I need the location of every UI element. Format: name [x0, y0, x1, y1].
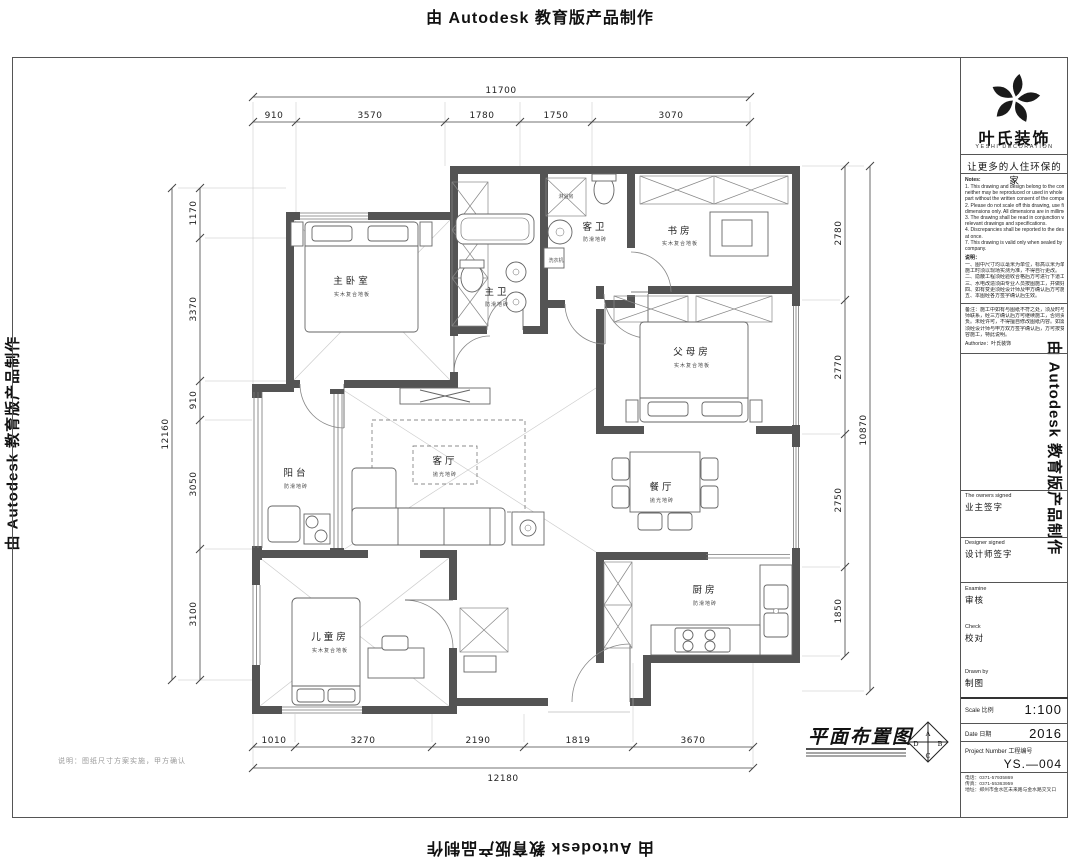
plan-title: 平面布置图 — [808, 726, 914, 748]
svg-text:1819: 1819 — [566, 736, 591, 746]
svg-text:C: C — [926, 752, 931, 760]
footer-note: 说明：图纸尺寸方案实施，甲方确认 — [58, 756, 186, 765]
room-label-study: 书房 — [667, 225, 692, 237]
dim-bottom-overall: 12180 — [487, 774, 518, 784]
svg-text:910: 910 — [189, 391, 199, 410]
svg-text:防滑地砖: 防滑地砖 — [583, 236, 607, 243]
room-label-kitchen: 厨房 — [692, 584, 717, 596]
svg-text:3670: 3670 — [681, 736, 706, 746]
svg-text:1750: 1750 — [544, 111, 569, 121]
svg-text:A: A — [925, 730, 931, 738]
room-label-parents-room: 父母房 — [673, 346, 711, 358]
svg-text:实木复合地板: 实木复合地板 — [334, 291, 370, 298]
svg-text:防滑地砖: 防滑地砖 — [693, 600, 717, 607]
svg-text:3070: 3070 — [659, 111, 684, 121]
svg-text:实木复合地板: 实木复合地板 — [674, 362, 710, 369]
dim-right-overall: 10870 — [859, 414, 869, 445]
svg-text:防滑地砖: 防滑地砖 — [284, 483, 308, 490]
svg-text:D: D — [913, 740, 918, 748]
floor-plan: 主卧室 实木复合地板 主卫 防滑地砖 客卫 防滑地砖 书房 实木复合地板 父母房… — [0, 0, 1080, 864]
washer-label: 洗衣机 — [548, 257, 563, 264]
room-label-balcony: 阳台 — [283, 467, 308, 479]
svg-text:B: B — [938, 740, 943, 748]
room-label-master-bath: 主卫 — [484, 286, 509, 298]
furniture — [268, 174, 792, 705]
svg-text:1780: 1780 — [470, 111, 495, 121]
compass-icon: A B C D — [908, 722, 948, 762]
svg-text:3570: 3570 — [358, 111, 383, 121]
dim-left-overall: 12160 — [161, 418, 171, 449]
svg-text:2190: 2190 — [466, 736, 491, 746]
room-label-master-bedroom: 主卧室 — [333, 275, 371, 287]
svg-text:2780: 2780 — [834, 221, 844, 246]
svg-text:抛光地砖: 抛光地砖 — [650, 497, 674, 504]
svg-text:2750: 2750 — [834, 488, 844, 513]
room-label-children-room: 儿童房 — [311, 631, 349, 643]
room-label-living-room: 客厅 — [432, 455, 457, 467]
svg-text:1850: 1850 — [834, 599, 844, 624]
svg-text:1010: 1010 — [262, 736, 287, 746]
room-label-guest-bath: 客卫 — [582, 221, 607, 233]
svg-text:抛光地砖: 抛光地砖 — [433, 471, 457, 478]
dimension-texts: 11700 910 3570 1780 1750 3070 12160 1170… — [161, 86, 869, 784]
svg-text:防滑地砖: 防滑地砖 — [485, 301, 509, 308]
svg-text:1170: 1170 — [189, 201, 199, 226]
svg-text:2770: 2770 — [834, 355, 844, 380]
svg-text:910: 910 — [265, 111, 284, 121]
dim-top-overall: 11700 — [485, 86, 516, 96]
svg-text:3100: 3100 — [189, 602, 199, 627]
svg-text:3050: 3050 — [189, 472, 199, 497]
shower-label: 淋浴房 — [558, 193, 573, 200]
svg-text:实木复合地板: 实木复合地板 — [662, 240, 698, 247]
plan-title-block: 平面布置图 A B C D — [806, 722, 948, 762]
svg-text:3270: 3270 — [351, 736, 376, 746]
svg-text:3370: 3370 — [189, 297, 199, 322]
room-label-dining-room: 餐厅 — [649, 481, 674, 493]
svg-text:实木复合地板: 实木复合地板 — [312, 647, 348, 654]
